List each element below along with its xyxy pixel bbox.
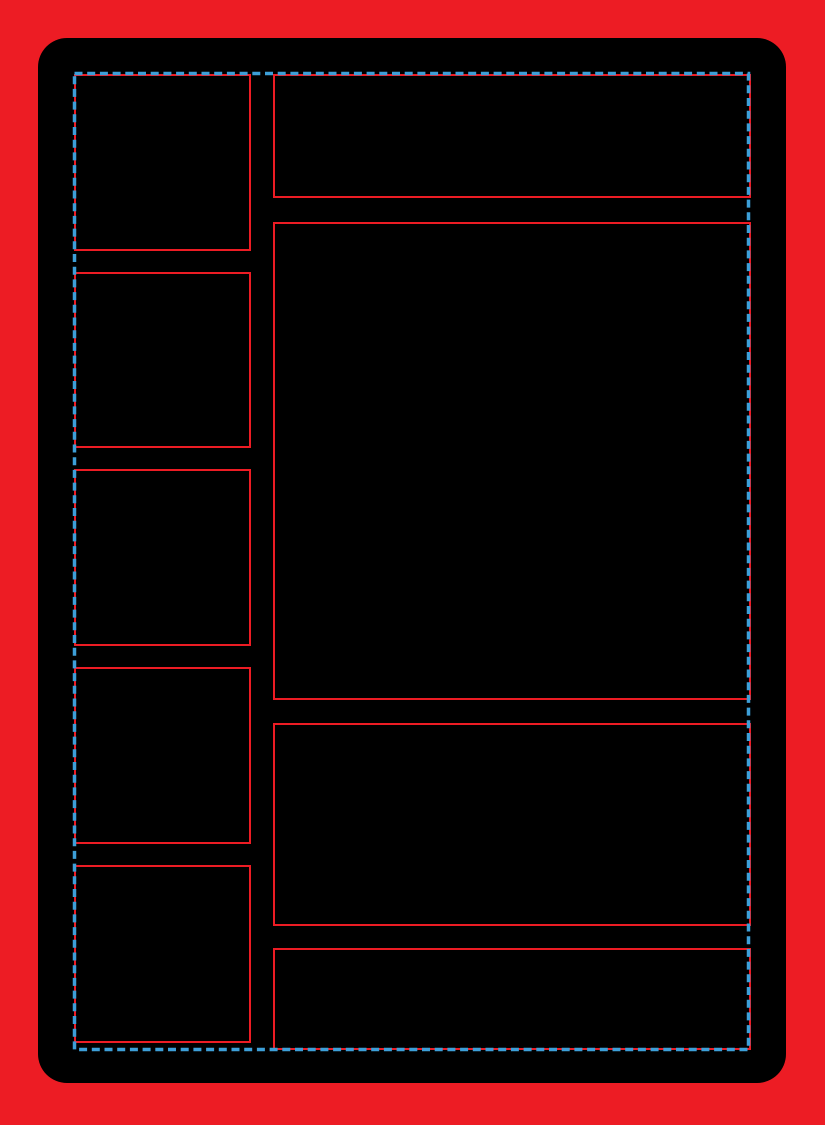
card-base <box>38 38 786 1083</box>
art-zone[interactable] <box>273 222 751 700</box>
header-zone[interactable] <box>273 74 751 198</box>
footer-zone[interactable] <box>273 948 751 1050</box>
left-slot-3[interactable] <box>74 469 251 646</box>
left-slot-5[interactable] <box>74 865 251 1043</box>
page-background <box>0 0 825 1125</box>
left-slot-1[interactable] <box>74 74 251 251</box>
left-slot-2[interactable] <box>74 272 251 448</box>
left-slot-4[interactable] <box>74 667 251 844</box>
text-zone[interactable] <box>273 723 751 926</box>
